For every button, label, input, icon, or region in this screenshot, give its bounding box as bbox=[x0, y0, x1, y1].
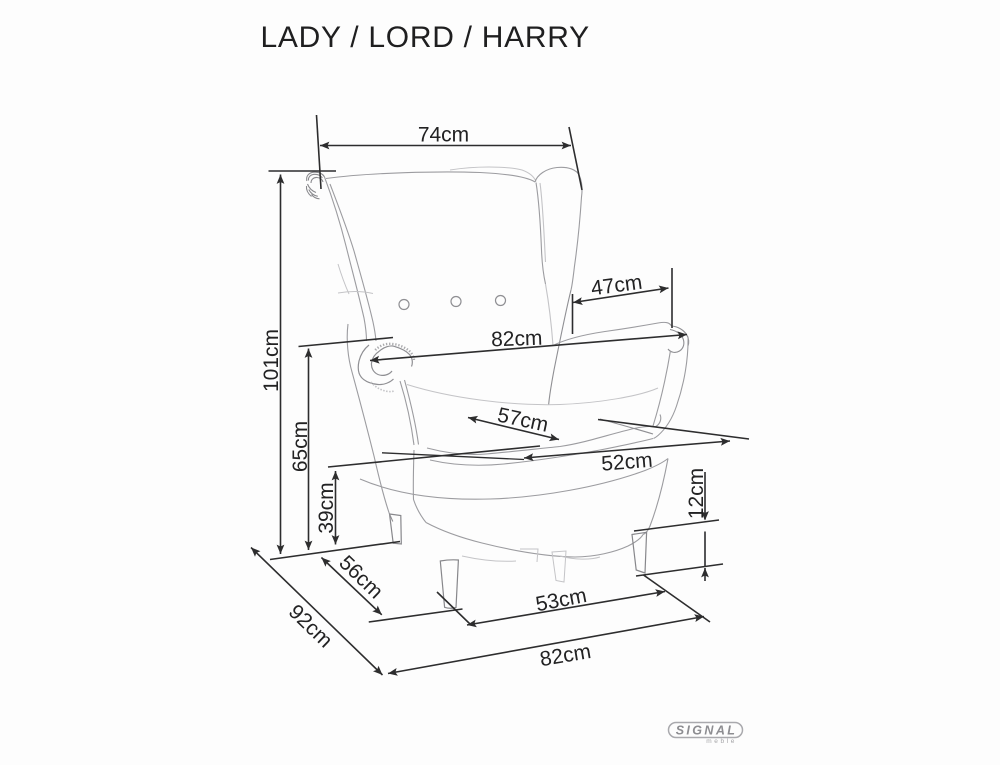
svg-text:SIGNAL: SIGNAL bbox=[676, 723, 738, 737]
svg-text:101cm: 101cm bbox=[260, 329, 283, 392]
svg-text:LADY / LORD / HARRY: LADY / LORD / HARRY bbox=[261, 21, 590, 54]
svg-text:74cm: 74cm bbox=[418, 124, 469, 147]
svg-text:52cm: 52cm bbox=[600, 449, 653, 476]
svg-text:12cm: 12cm bbox=[685, 468, 708, 519]
svg-text:meble: meble bbox=[706, 738, 737, 745]
svg-text:82cm: 82cm bbox=[491, 327, 543, 352]
svg-text:65cm: 65cm bbox=[289, 421, 312, 472]
svg-text:39cm: 39cm bbox=[315, 482, 338, 533]
